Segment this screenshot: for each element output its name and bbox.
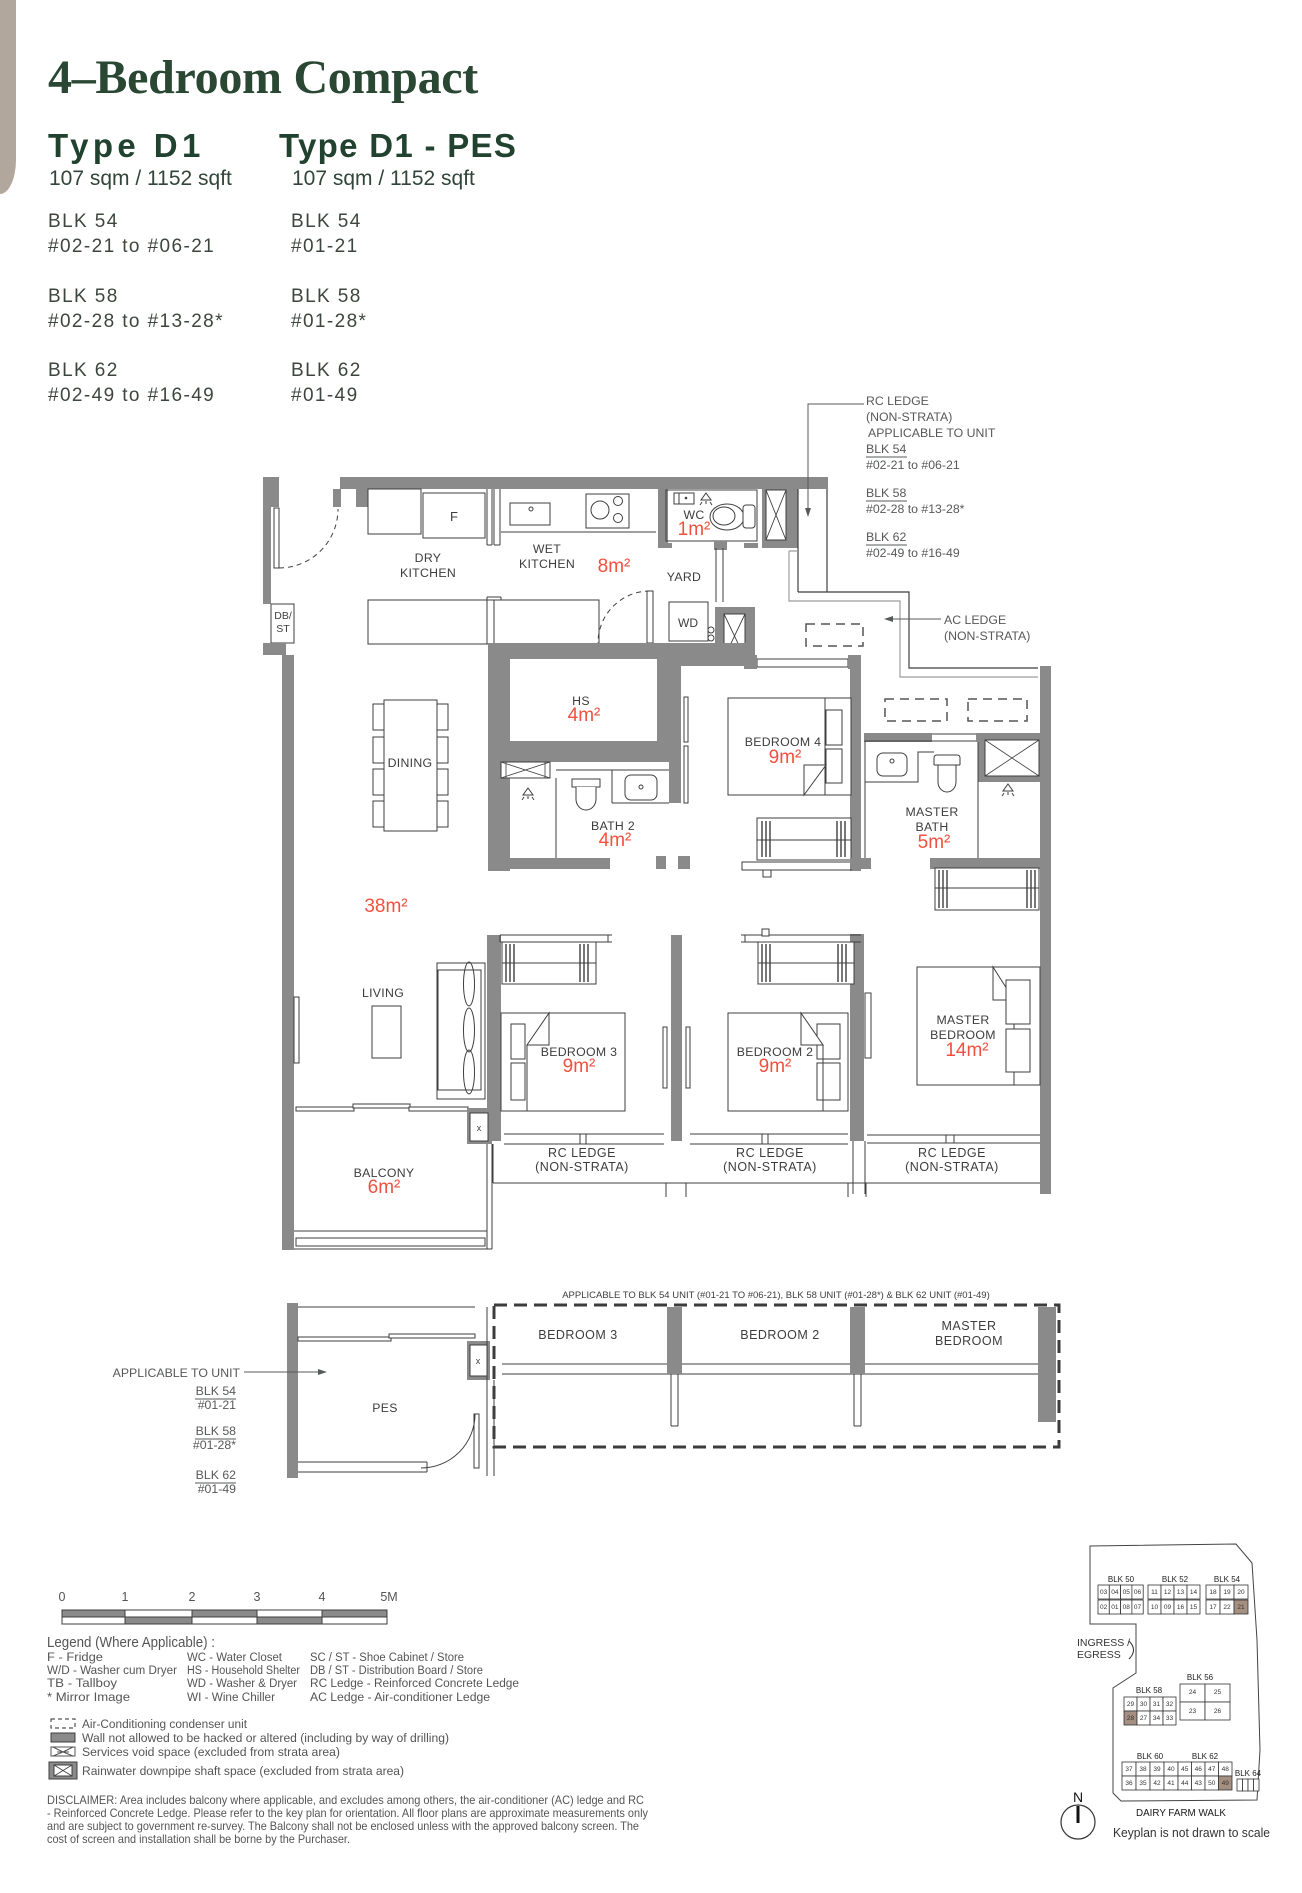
svg-text:09: 09 [1164,1604,1172,1611]
svg-text:KITCHEN: KITCHEN [400,566,456,580]
svg-text:- Reinforced Concrete Ledge. P: - Reinforced Concrete Ledge. Please refe… [47,1806,648,1820]
svg-text:46: 46 [1195,1766,1203,1773]
svg-text:RC LEDGE: RC LEDGE [736,1146,804,1160]
svg-text:F - Fridge: F - Fridge [47,1650,103,1664]
svg-text:22: 22 [1223,1604,1231,1611]
svg-text:1m²: 1m² [678,519,711,540]
svg-text:BLK 64: BLK 64 [1235,1769,1262,1778]
svg-text:HS - Household Shelter: HS - Household Shelter [187,1663,300,1677]
svg-text:Wall not allowed to be hacked: Wall not allowed to be hacked or altered… [82,1731,449,1745]
svg-text:DAIRY FARM WALK: DAIRY FARM WALK [1136,1808,1226,1819]
svg-text:27: 27 [1140,1715,1148,1722]
svg-text:LIVING: LIVING [362,986,404,1000]
svg-text:38: 38 [1139,1766,1147,1773]
svg-text:32: 32 [1166,1701,1174,1708]
svg-text:12: 12 [1164,1589,1172,1596]
svg-text:43: 43 [1195,1780,1203,1787]
svg-text:AC Ledge - Air-conditioner Led: AC Ledge - Air-conditioner Ledge [310,1690,490,1704]
svg-text:44: 44 [1181,1780,1189,1787]
svg-text:RC LEDGE: RC LEDGE [866,394,929,408]
svg-text:45: 45 [1181,1766,1189,1773]
svg-text:9m²: 9m² [563,1056,596,1077]
svg-text:42: 42 [1153,1780,1161,1787]
svg-text:x: x [477,1123,482,1133]
svg-text:(NON-STRATA): (NON-STRATA) [535,1160,629,1174]
svg-text:APPLICABLE TO UNIT: APPLICABLE TO UNIT [868,426,996,440]
svg-text:#01-49: #01-49 [198,1482,236,1496]
svg-text:04: 04 [1111,1589,1119,1596]
svg-text:BLK 56: BLK 56 [1187,1673,1214,1682]
svg-text:37: 37 [1125,1766,1133,1773]
svg-text:07: 07 [1134,1604,1142,1611]
svg-text:EGRESS: EGRESS [1077,1649,1121,1661]
svg-text:30: 30 [1140,1701,1148,1708]
svg-text:BLK 62: BLK 62 [196,1468,236,1482]
svg-text:#02-21 to #06-21: #02-21 to #06-21 [866,458,960,472]
svg-text:4: 4 [319,1590,326,1604]
svg-text:SC / ST - Shoe Cabinet / Store: SC / ST - Shoe Cabinet / Store [310,1650,464,1664]
svg-text:WI - Wine Chiller: WI - Wine Chiller [187,1690,275,1704]
svg-text:BLK 58: BLK 58 [1136,1686,1163,1695]
svg-text:01: 01 [1111,1604,1119,1611]
svg-text:(NON-STRATA): (NON-STRATA) [944,629,1030,643]
svg-text:21: 21 [1237,1604,1245,1611]
svg-text:2: 2 [189,1590,196,1604]
svg-text:02: 02 [1100,1604,1108,1611]
svg-text:25: 25 [1214,1689,1222,1696]
svg-text:BEDROOM 2: BEDROOM 2 [740,1328,820,1342]
svg-text:Services void space (excluded: Services void space (excluded from strat… [82,1745,340,1759]
svg-text:4m²: 4m² [599,830,632,851]
svg-text:9m²: 9m² [759,1056,792,1077]
svg-text:39: 39 [1153,1766,1161,1773]
svg-text:(NON-STRATA): (NON-STRATA) [723,1160,817,1174]
svg-text:APPLICABLE TO BLK 54 UNIT (#01: APPLICABLE TO BLK 54 UNIT (#01-21 TO #06… [562,1290,990,1301]
svg-text:DRY: DRY [415,551,442,565]
svg-text:Keyplan is not drawn to scale: Keyplan is not drawn to scale [1113,1825,1270,1840]
svg-text:APPLICABLE TO UNIT: APPLICABLE TO UNIT [113,1366,241,1380]
svg-text:WD: WD [678,616,698,630]
svg-text:BLK 50: BLK 50 [1108,1575,1135,1584]
svg-text:Rainwater downpipe shaft space: Rainwater downpipe shaft space (excluded… [82,1764,404,1778]
svg-text:AC LEDGE: AC LEDGE [944,613,1006,627]
svg-text:13: 13 [1177,1589,1185,1596]
svg-text:#02-28 to #13-28*: #02-28 to #13-28* [866,502,965,516]
svg-text:11: 11 [1151,1589,1158,1596]
svg-text:31: 31 [1153,1701,1161,1708]
svg-text:MASTER: MASTER [941,1319,996,1333]
svg-text:05: 05 [1123,1589,1131,1596]
svg-text:RC Ledge - Reinforced Concrete: RC Ledge - Reinforced Concrete Ledge [310,1676,519,1690]
svg-text:#01-28*: #01-28* [193,1438,236,1452]
svg-text:BEDROOM 3: BEDROOM 3 [538,1328,618,1342]
svg-text:and are subject to government: and are subject to government re-survey.… [47,1819,639,1833]
svg-text:MASTER: MASTER [936,1013,989,1027]
svg-text:33: 33 [1166,1715,1174,1722]
svg-text:35: 35 [1139,1780,1147,1787]
svg-text:08: 08 [1123,1604,1131,1611]
svg-text:DINING: DINING [388,756,433,770]
svg-text:YARD: YARD [667,570,701,584]
svg-text:47: 47 [1208,1766,1216,1773]
svg-text:49: 49 [1222,1780,1230,1787]
svg-text:40: 40 [1167,1766,1175,1773]
svg-text:41: 41 [1167,1780,1175,1787]
svg-text:PES: PES [372,1401,398,1415]
svg-text:26: 26 [1214,1708,1222,1715]
svg-text:BLK 62: BLK 62 [866,530,906,544]
svg-text:INGRESS /: INGRESS / [1077,1637,1130,1649]
svg-text:Legend (Where Applicable) :: Legend (Where Applicable) : [47,1634,215,1651]
svg-text:17: 17 [1209,1604,1217,1611]
svg-text:50: 50 [1208,1780,1216,1787]
svg-text:0: 0 [59,1590,66,1604]
svg-text:BLK 52: BLK 52 [1162,1575,1189,1584]
svg-text:6m²: 6m² [368,1177,401,1198]
svg-text:14m²: 14m² [945,1040,988,1061]
svg-text:8m²: 8m² [598,556,631,577]
svg-text:* Mirror Image: * Mirror Image [47,1690,130,1704]
svg-text:BLK 54: BLK 54 [196,1384,236,1398]
svg-text:23: 23 [1189,1708,1197,1715]
svg-text:TB - Tallboy: TB - Tallboy [47,1676,118,1690]
svg-text:48: 48 [1222,1766,1230,1773]
svg-text:BLK 60: BLK 60 [1137,1752,1164,1761]
svg-text:18: 18 [1209,1589,1217,1596]
svg-text:3: 3 [254,1590,261,1604]
svg-text:10: 10 [1151,1604,1159,1611]
svg-text:x: x [476,1356,481,1366]
svg-text:RC LEDGE: RC LEDGE [918,1146,986,1160]
svg-text:4m²: 4m² [568,705,601,726]
svg-text:36: 36 [1125,1780,1133,1787]
svg-text:38m²: 38m² [364,896,407,917]
svg-text:#02-49 to #16-49: #02-49 to #16-49 [866,546,960,560]
svg-text:WD - Washer & Dryer: WD - Washer & Dryer [187,1676,297,1690]
svg-text:#01-21: #01-21 [198,1398,236,1412]
svg-text:BLK 54: BLK 54 [1214,1575,1241,1584]
svg-text:ST: ST [276,623,290,635]
svg-text:DB/: DB/ [274,610,292,622]
svg-text:5M: 5M [380,1590,397,1604]
svg-text:Air-Conditioning condenser uni: Air-Conditioning condenser unit [82,1717,248,1731]
svg-text:cost of screen and installatio: cost of screen and installation shall be… [47,1832,350,1846]
svg-text:BLK 62: BLK 62 [1192,1752,1219,1761]
svg-text:RC LEDGE: RC LEDGE [548,1146,616,1160]
svg-text:BLK 54: BLK 54 [866,442,906,456]
svg-text:5m²: 5m² [918,832,951,853]
svg-text:19: 19 [1223,1589,1231,1596]
svg-text:34: 34 [1153,1715,1161,1722]
svg-text:W/D - Washer cum Dryer: W/D - Washer cum Dryer [47,1663,177,1677]
svg-text:1: 1 [122,1590,129,1604]
svg-text:DISCLAIMER: Area includes balc: DISCLAIMER: Area includes balcony where … [47,1793,644,1807]
svg-text:9m²: 9m² [769,747,802,768]
svg-text:BLK 58: BLK 58 [196,1424,236,1438]
svg-text:N: N [1073,1789,1083,1805]
svg-text:F: F [450,509,458,524]
svg-text:15: 15 [1190,1604,1198,1611]
svg-text:DB / ST - Distribution Board /: DB / ST - Distribution Board / Store [310,1663,483,1677]
svg-text:03: 03 [1100,1589,1108,1596]
svg-text:KITCHEN: KITCHEN [519,557,575,571]
svg-text:BEDROOM: BEDROOM [935,1334,1003,1348]
svg-text:29: 29 [1127,1701,1135,1708]
svg-text:MASTER: MASTER [905,805,958,819]
svg-text:WC - Water Closet: WC - Water Closet [187,1650,283,1664]
svg-text:20: 20 [1237,1589,1245,1596]
svg-text:24: 24 [1189,1689,1197,1696]
svg-text:06: 06 [1134,1589,1142,1596]
svg-text:(NON-STRATA): (NON-STRATA) [866,410,952,424]
svg-text:14: 14 [1190,1589,1198,1596]
svg-text:16: 16 [1177,1604,1185,1611]
svg-text:28: 28 [1127,1715,1135,1722]
svg-text:(NON-STRATA): (NON-STRATA) [905,1160,999,1174]
svg-text:BLK 58: BLK 58 [866,486,906,500]
svg-text:WET: WET [533,542,561,556]
